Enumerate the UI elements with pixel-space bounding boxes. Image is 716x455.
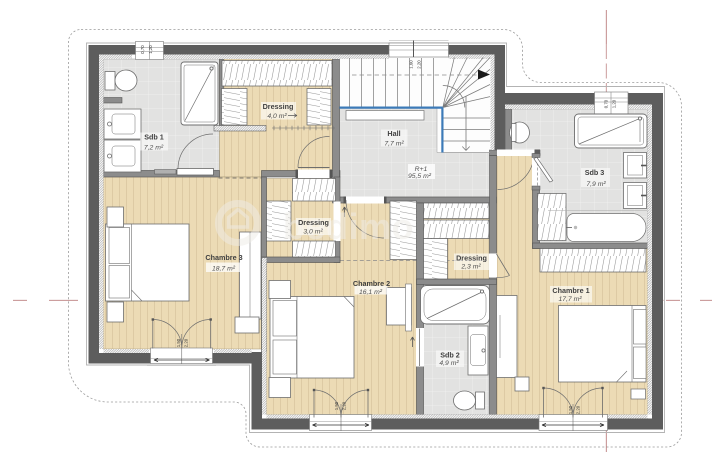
- svg-text:Dressing: Dressing: [456, 254, 487, 263]
- svg-text:18,7 m²: 18,7 m²: [212, 266, 236, 273]
- svg-text:95,5 m²: 95,5 m²: [408, 173, 432, 180]
- svg-text:4,9 m²: 4,9 m²: [439, 360, 459, 367]
- svg-text:Sdb 2: Sdb 2: [440, 351, 460, 360]
- svg-text:1,20: 1,20: [148, 45, 153, 54]
- svg-text:3,0 m²: 3,0 m²: [303, 229, 323, 236]
- svg-text:7,7 m²: 7,7 m²: [384, 141, 404, 148]
- svg-text:7,9 m²: 7,9 m²: [586, 181, 606, 188]
- svg-text:Hall: Hall: [387, 129, 400, 138]
- svg-text:2,3 m²: 2,3 m²: [460, 264, 481, 271]
- svg-text:4,0 m²: 4,0 m²: [267, 113, 287, 120]
- svg-text:1,50: 1,50: [568, 405, 573, 414]
- svg-text:Chambre 3: Chambre 3: [205, 253, 242, 262]
- svg-text:2,20: 2,20: [576, 405, 581, 414]
- svg-text:Sdb 1: Sdb 1: [144, 133, 164, 142]
- svg-text:1,50: 1,50: [176, 338, 181, 347]
- svg-text:Chambre 2: Chambre 2: [353, 279, 390, 288]
- svg-text:1,20: 1,20: [612, 99, 617, 108]
- svg-text:7,2 m²: 7,2 m²: [144, 145, 164, 152]
- svg-text:Dressing: Dressing: [298, 218, 329, 227]
- svg-text:2,20: 2,20: [184, 338, 189, 347]
- svg-text:Sdb 3: Sdb 3: [585, 168, 605, 177]
- svg-text:2,20: 2,20: [342, 401, 347, 410]
- svg-text:16,1 m²: 16,1 m²: [359, 289, 383, 296]
- svg-text:R+1: R+1: [415, 166, 428, 173]
- svg-text:1,50: 1,50: [334, 401, 339, 410]
- svg-text:2,20: 2,20: [417, 60, 422, 69]
- svg-text:0,70: 0,70: [604, 99, 609, 108]
- svg-text:0,70: 0,70: [140, 45, 145, 54]
- svg-text:Chambre 1: Chambre 1: [552, 286, 589, 295]
- svg-text:Dressing: Dressing: [263, 102, 294, 111]
- svg-text:17,7 m²: 17,7 m²: [558, 296, 582, 303]
